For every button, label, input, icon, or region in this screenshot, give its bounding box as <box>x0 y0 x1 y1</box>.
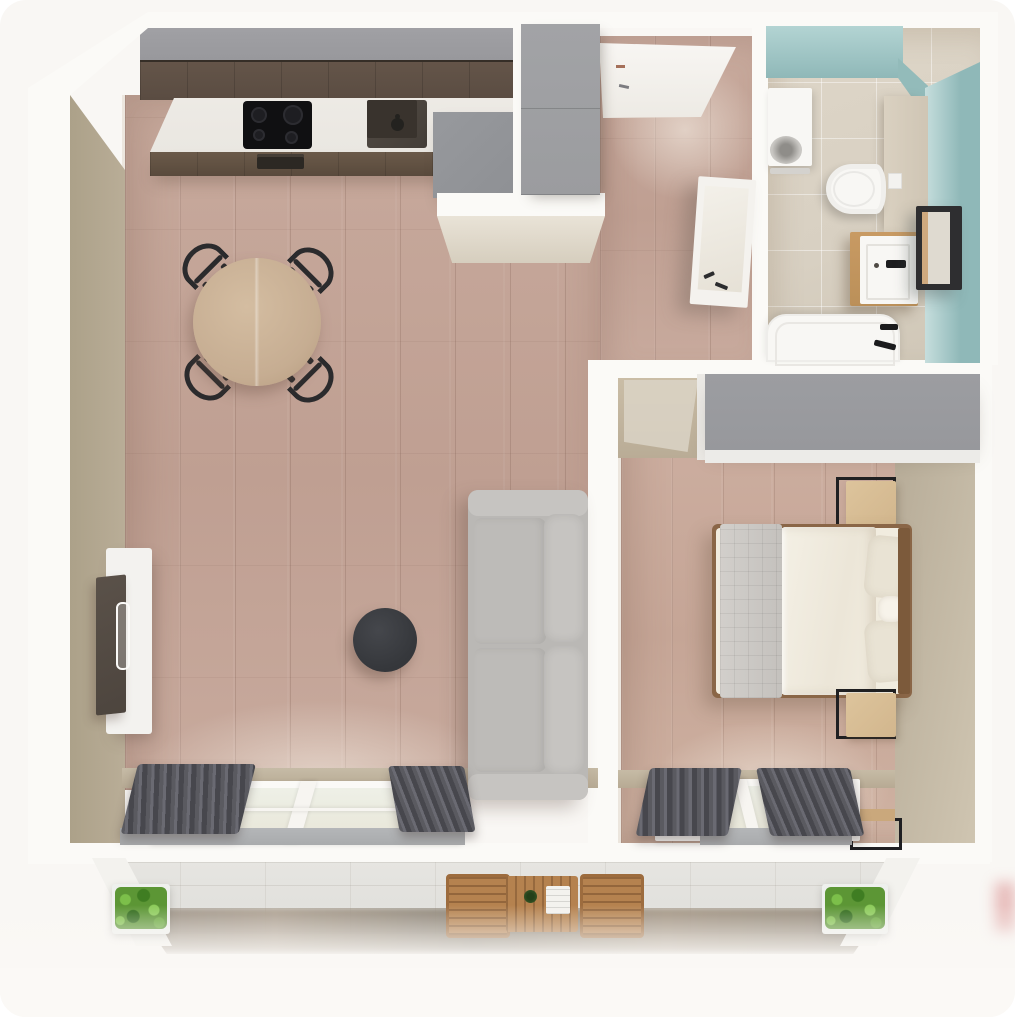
wardrobe-seam <box>521 108 600 109</box>
nightstand <box>836 689 936 741</box>
soundbar <box>116 602 130 670</box>
washing-machine <box>768 88 812 166</box>
door-handle <box>616 65 625 68</box>
living-curtain-right <box>388 766 476 832</box>
northwest-wall-diagonal <box>28 12 150 98</box>
oven-handle <box>257 154 304 169</box>
kitchen-hall-wall-face <box>437 216 605 263</box>
toilet-seat <box>833 171 875 207</box>
west-wall-face <box>70 95 125 850</box>
sofa-back-cushion <box>544 514 584 642</box>
east-wall-north <box>980 12 998 365</box>
flush-plate <box>888 173 902 189</box>
leaning-mirror <box>690 176 757 308</box>
washer-drawer <box>770 168 810 174</box>
basin-rim <box>866 244 910 300</box>
burner-icon <box>253 129 265 141</box>
sofa-seat-cushion <box>474 518 546 644</box>
burner-icon <box>283 105 303 125</box>
nightstand-top <box>846 693 896 737</box>
west-wall <box>28 88 70 858</box>
coffee-table <box>353 608 417 672</box>
sofa-armrest <box>468 774 588 800</box>
sofa-armrest <box>468 490 588 516</box>
hall-wardrobe <box>521 24 600 195</box>
kitchen-hall-wall <box>437 193 605 216</box>
duvet <box>782 527 876 695</box>
headboard <box>898 528 910 694</box>
kitchen-sink <box>367 100 427 148</box>
bedroom-wardrobe-front <box>705 450 980 463</box>
washer-drum <box>770 136 802 164</box>
floor-plan-render <box>0 0 1015 1017</box>
quilted-runner <box>720 524 782 698</box>
vanity-basin <box>860 236 918 304</box>
door-hinge <box>619 84 629 89</box>
sofa <box>468 490 588 800</box>
bathtub <box>766 314 900 362</box>
living-curtain-left <box>121 764 256 834</box>
burner-icon <box>285 131 298 144</box>
nightstand-top <box>846 481 896 525</box>
nightstand <box>836 477 936 529</box>
cooktop <box>243 101 312 149</box>
burner-icon <box>251 107 267 123</box>
plant-pot <box>524 890 537 903</box>
dining-table <box>193 258 321 386</box>
mirror-reflection <box>922 212 950 284</box>
bedroom-door-open <box>624 380 698 452</box>
kitchen-faucet <box>391 118 404 131</box>
bathroom-teal-wall-north <box>766 26 903 78</box>
toilet <box>826 164 886 214</box>
bed <box>712 524 912 698</box>
sofa-seat-cushion <box>474 648 546 772</box>
basin-faucet <box>886 260 906 268</box>
kitchen-tall-unit <box>433 112 517 198</box>
kitchen-upper-cabinets <box>140 60 517 100</box>
bottom-white <box>0 968 1015 1017</box>
bedroom-curtain-right <box>756 768 864 836</box>
bathroom-mirror <box>916 206 962 290</box>
south-wall <box>28 843 990 864</box>
bathtub-faucet <box>880 324 898 330</box>
bedroom-curtain-left <box>636 768 742 836</box>
bedroom-wardrobe <box>705 374 980 450</box>
basin-drain <box>874 263 879 268</box>
sofa-back-cushion <box>544 646 584 774</box>
